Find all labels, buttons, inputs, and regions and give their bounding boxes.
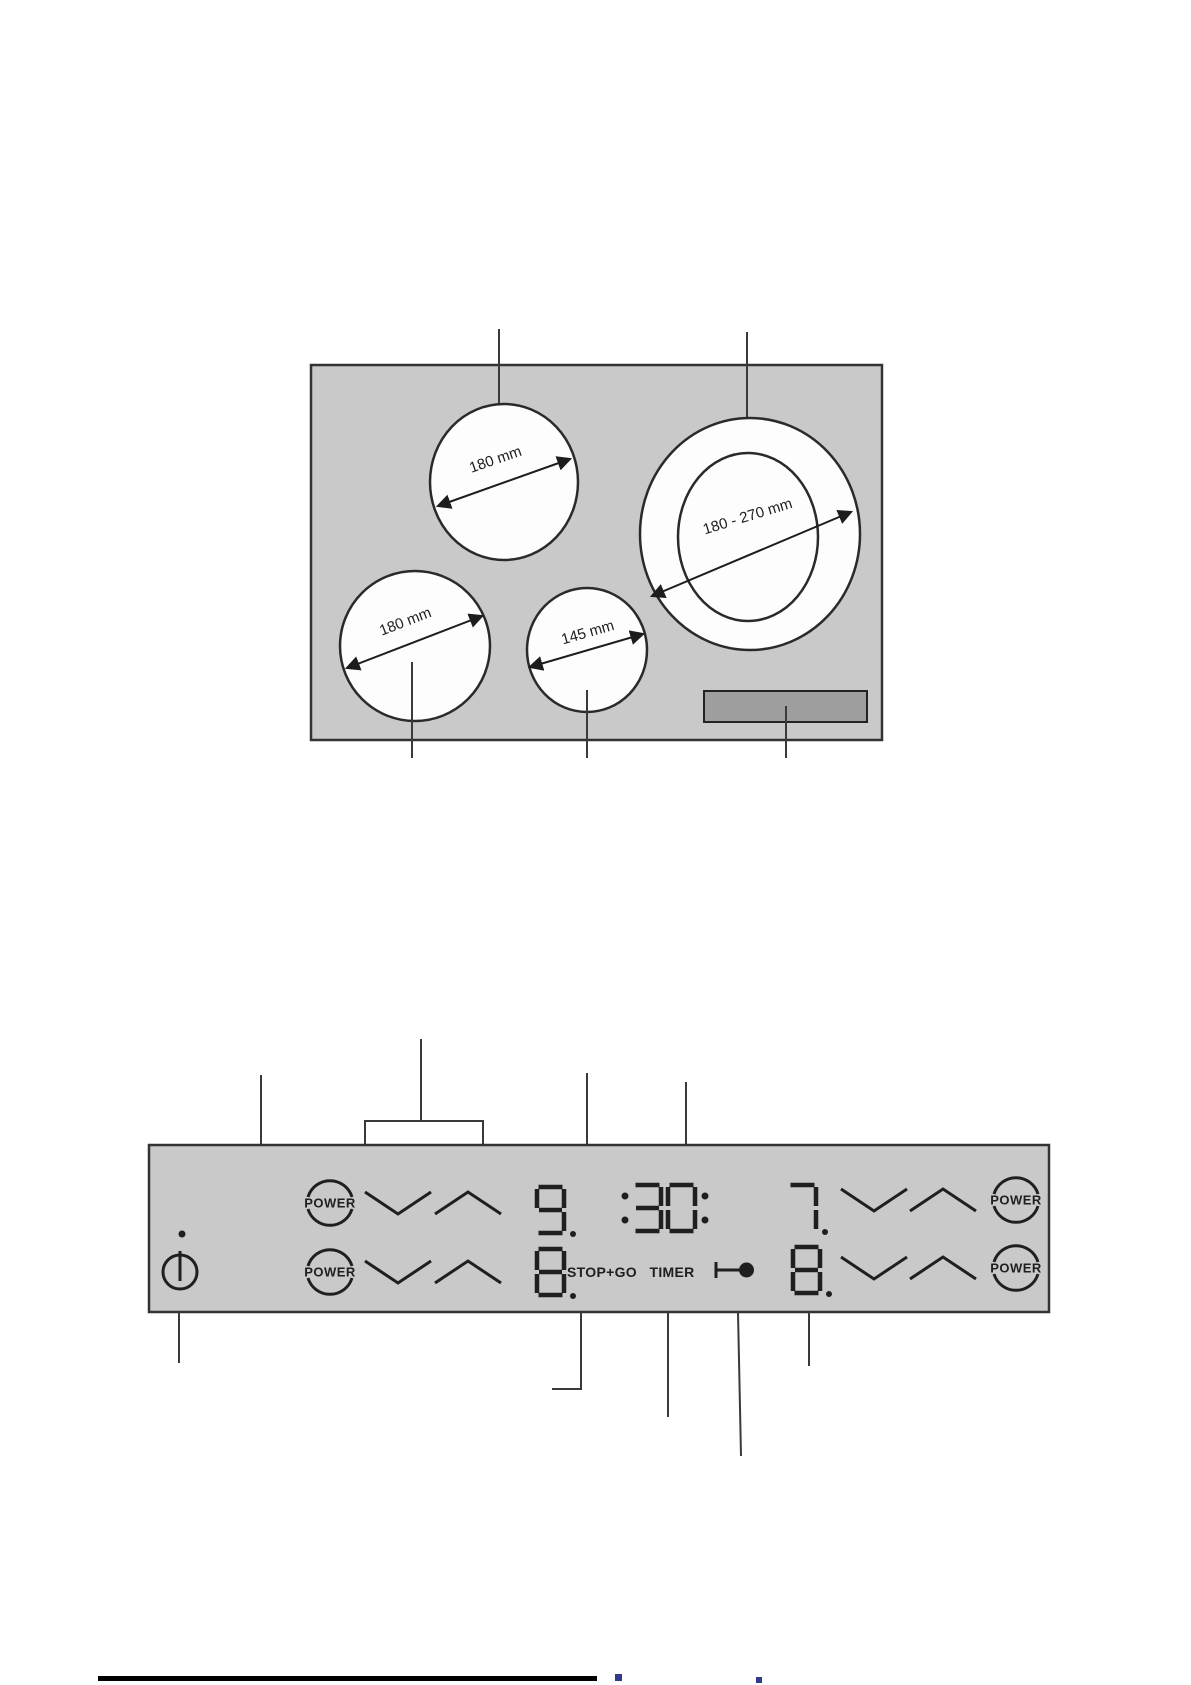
stop-go-button: STOP+GO (567, 1264, 637, 1280)
power-button-label: POWER (990, 1261, 1042, 1276)
power-button-label: POWER (990, 1193, 1042, 1208)
display-dot (570, 1231, 576, 1237)
panel-surface (149, 1145, 1049, 1312)
zone-rear-right-inner (678, 453, 818, 621)
display-dot (822, 1229, 828, 1235)
callout-line-stop-go (552, 1312, 581, 1389)
indicator-dot (179, 1231, 186, 1238)
power-button-label: POWER (304, 1265, 356, 1280)
power-button-label: POWER (304, 1196, 356, 1211)
manual-page-graphics: 180 mm 180 - 270 mm 180 mm 145 mm POWER (0, 0, 1191, 1685)
footer-rule (98, 1676, 597, 1681)
hob-diagram: 180 mm 180 - 270 mm 180 mm 145 mm (311, 329, 882, 758)
timer-button: TIMER (649, 1264, 694, 1280)
footer-mark (615, 1674, 622, 1681)
control-panel-diagram: POWER POWER POWER POWER (149, 1039, 1049, 1456)
display-dot (622, 1217, 629, 1224)
display-dot (570, 1293, 576, 1299)
scanned-manual-page: 180 mm 180 - 270 mm 180 mm 145 mm POWER (0, 0, 1191, 1685)
display-dot (702, 1217, 709, 1224)
footer-mark (756, 1677, 762, 1683)
zone-front-left (340, 571, 490, 721)
display-dot (702, 1193, 709, 1200)
display-dot (826, 1291, 832, 1297)
display-dot (622, 1193, 629, 1200)
key-bow (739, 1263, 754, 1278)
callout-line-key-lock (738, 1312, 741, 1456)
